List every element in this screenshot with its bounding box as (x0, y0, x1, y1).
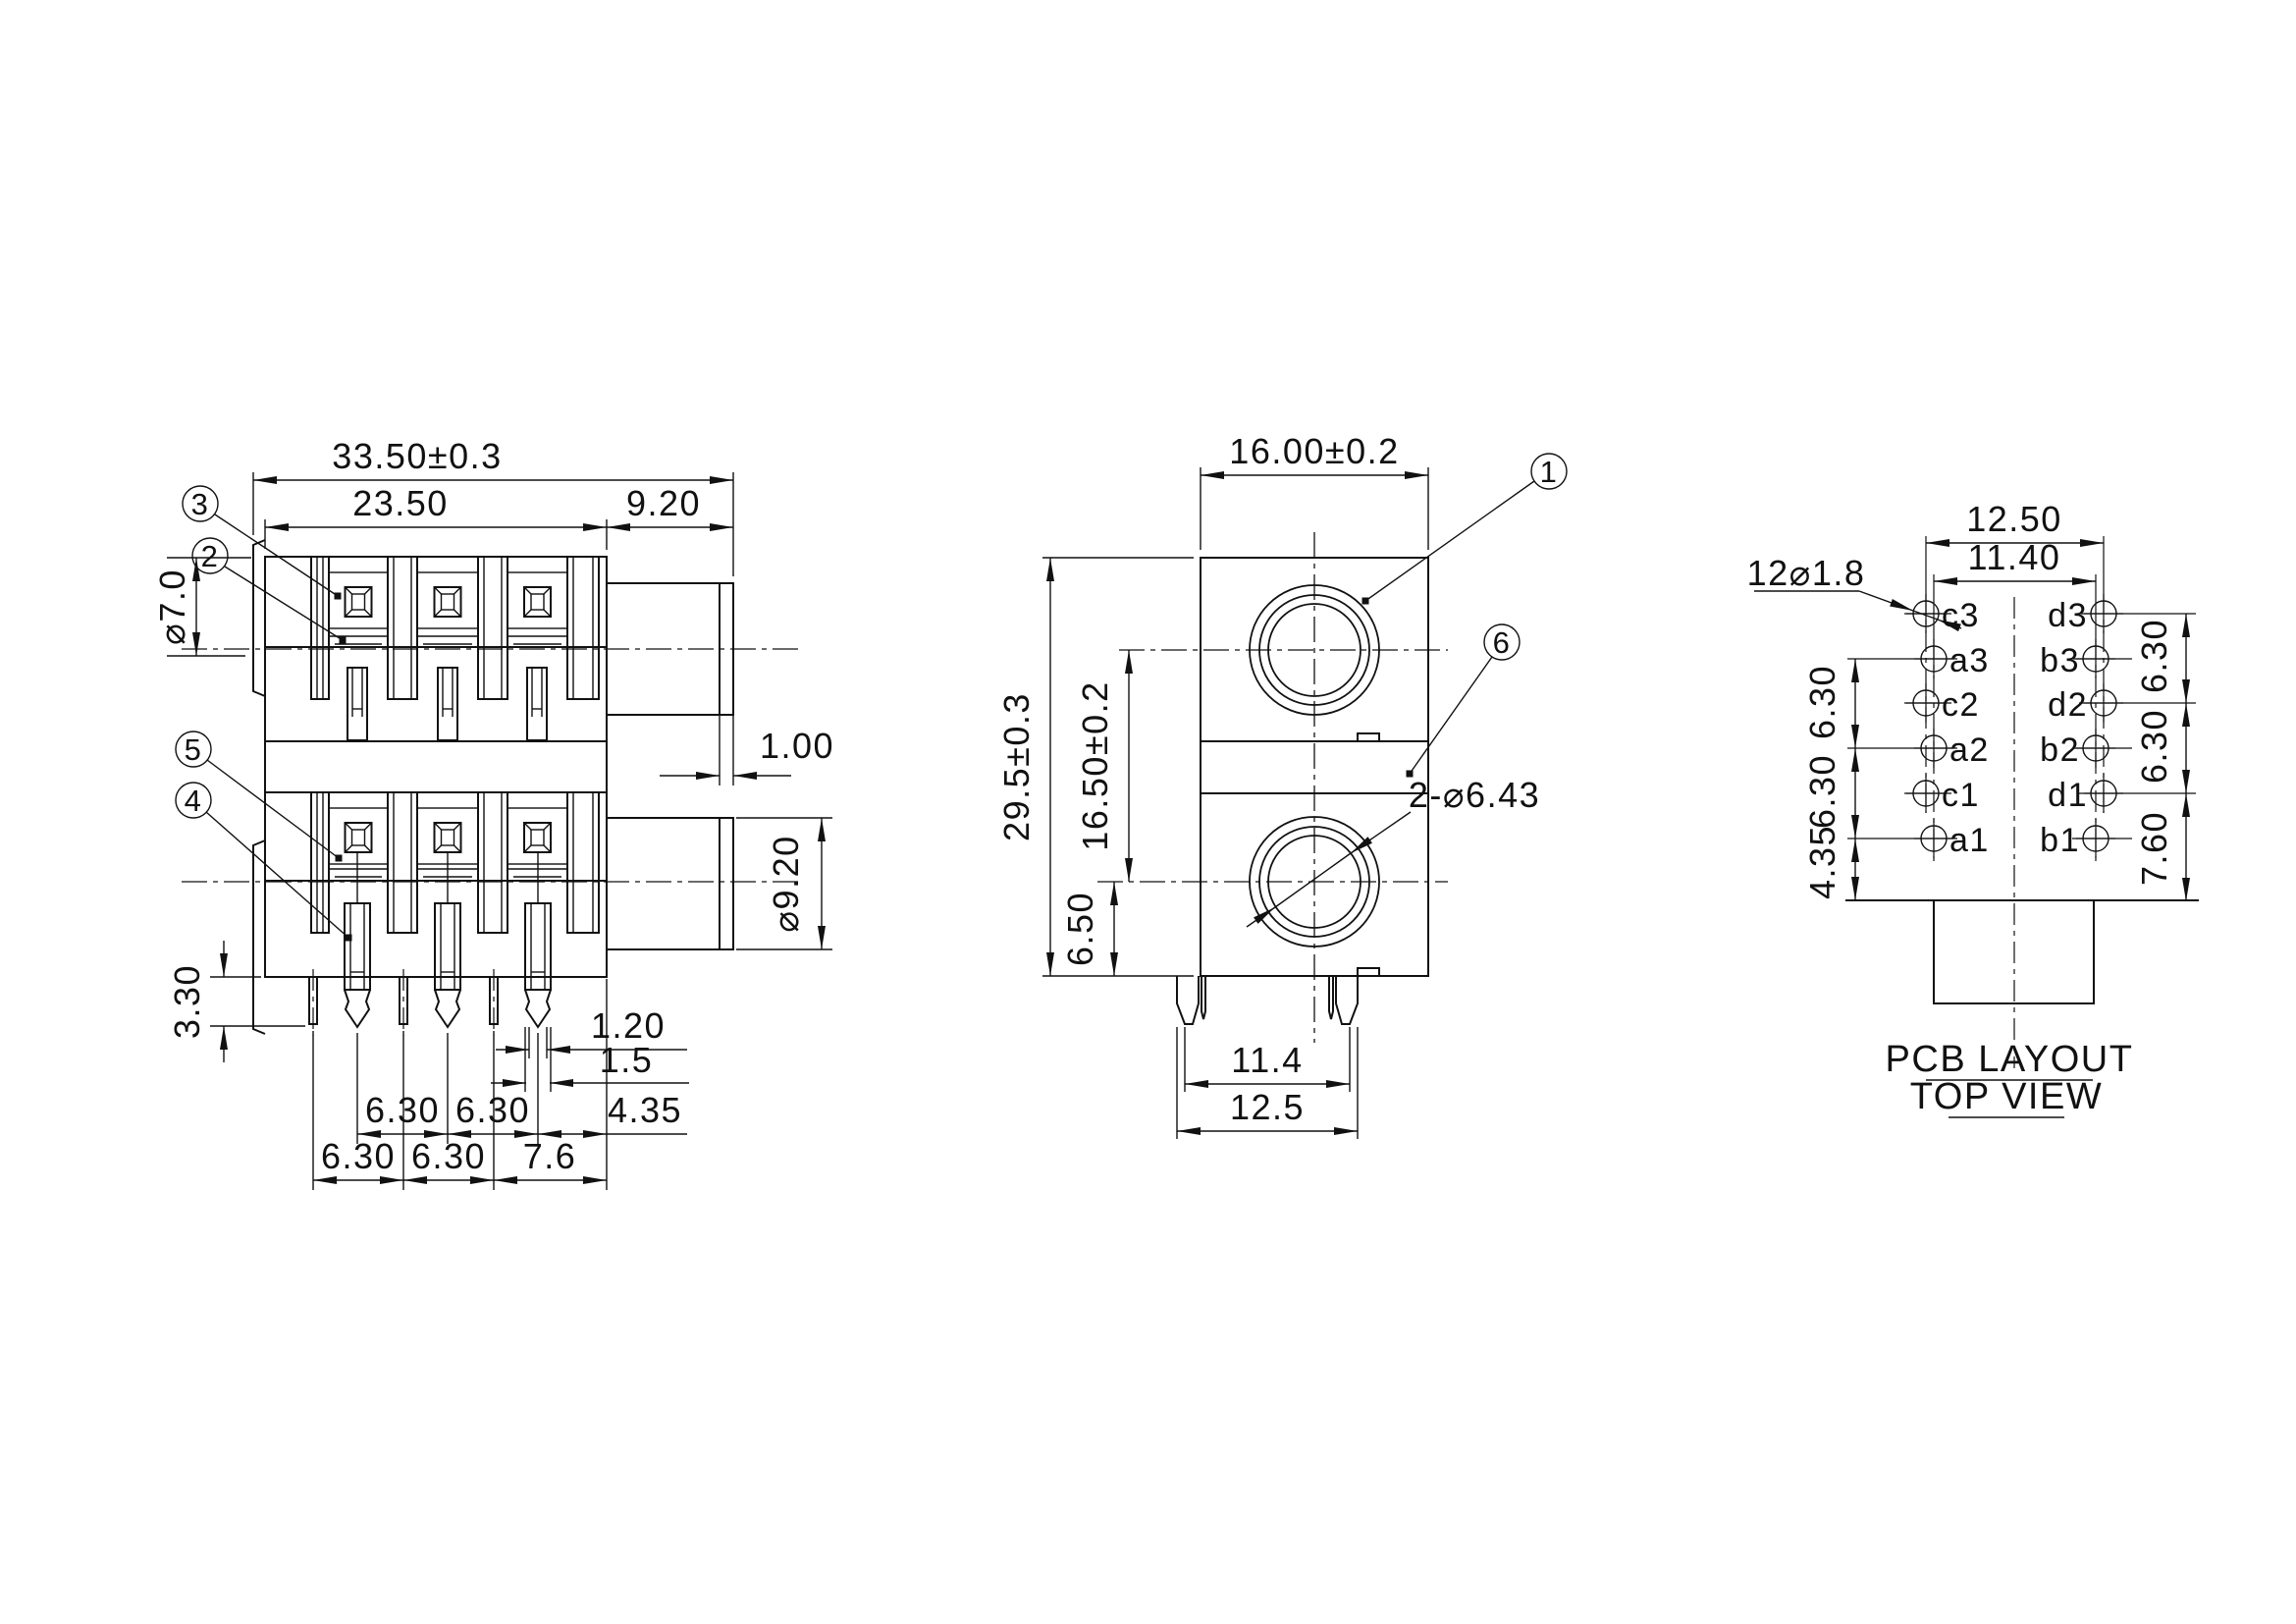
side-left-lip-top (253, 540, 265, 696)
lug-inner (352, 830, 365, 845)
solder-pin-tip (345, 990, 370, 1027)
dim-dia-9-20: ⌀9.20 (766, 835, 806, 932)
front-notch-top (1358, 733, 1379, 741)
callout-leader (225, 567, 343, 640)
separator-post (567, 557, 599, 699)
dim-12-5: 12.5 (1230, 1087, 1305, 1127)
pcb-pad-label-c2: c2 (1942, 686, 1980, 724)
dim-4-35: 4.35 (608, 1090, 682, 1130)
side-left-lip-bottom (253, 840, 265, 1034)
dim-6-30-bot1: 6.30 (321, 1136, 396, 1176)
dim-12-50: 12.50 (1966, 499, 2062, 539)
dim-9-20: 9.20 (626, 483, 701, 523)
callout-4: 4 (185, 784, 203, 818)
pcb-pad-label-d3: d3 (2048, 597, 2088, 634)
dim-23-50: 23.50 (352, 483, 449, 523)
dim-6-50: 6.50 (1060, 892, 1100, 966)
callout-leader (206, 812, 348, 938)
side-internal-detail (309, 557, 599, 1036)
pcb-title-line2: TOP VIEW (1910, 1076, 2103, 1117)
side-dimension-lines (196, 480, 822, 1180)
leader-dot (335, 593, 342, 600)
dim-3-30: 3.30 (167, 964, 207, 1039)
middle-contact-tab (438, 668, 457, 740)
front-view (1097, 532, 1448, 1043)
pcb-pad-label-b2: b2 (2040, 731, 2080, 769)
callout-1: 1 (1540, 455, 1559, 489)
side-bottom-bushing (607, 818, 733, 949)
callout-leader (1410, 657, 1492, 774)
contact-cavity (329, 572, 388, 628)
lug-inner (531, 594, 544, 610)
dim-11-4: 11.4 (1231, 1040, 1303, 1080)
middle-contact-tab (347, 668, 367, 740)
dim-33-50: 33.50±0.3 (332, 436, 502, 476)
dimension-texts: 33.50±0.323.509.20⌀7.01.00⌀9.203.301.201… (152, 431, 2174, 1176)
dim-6-30-pcb-r1: 6.30 (2134, 619, 2174, 693)
note-12-dia-1-8: 12⌀1.8 (1747, 553, 1866, 593)
middle-contact-tab (527, 668, 547, 740)
callout-6: 6 (1493, 625, 1512, 660)
drawing-canvas: c3d3a3b3c2d2a2b2c1d1a1b1 33.50±0.323.509… (0, 0, 2296, 1624)
dim-1-5: 1.5 (600, 1040, 654, 1080)
separator-post (388, 557, 417, 699)
callout-leader (1365, 481, 1534, 601)
lug-inner (531, 830, 544, 845)
front-leg-left (1177, 976, 1199, 1024)
note-2-dia-6-43: 2-⌀6.43 (1409, 775, 1540, 815)
pcb-pad-label-a3: a3 (1949, 642, 1990, 679)
dim-7-6: 7.6 (523, 1136, 577, 1176)
callout-leader (207, 760, 339, 858)
dim-29-5: 29.5±0.3 (996, 692, 1037, 841)
dim-11-40: 11.40 (1968, 537, 2061, 577)
dim-7-60-pcb: 7.60 (2134, 811, 2174, 886)
callout-2: 2 (201, 539, 220, 573)
solder-pin-tip (525, 990, 551, 1027)
pcb-title-line1: PCB LAYOUT (1886, 1039, 2134, 1080)
dim-6-30-top1: 6.30 (365, 1090, 440, 1130)
dim-16-50: 16.50±0.2 (1075, 680, 1115, 850)
callout-3: 3 (191, 487, 210, 521)
pcb-pad-label-d1: d1 (2048, 777, 2088, 814)
contact-cavity (507, 572, 567, 628)
separator-post (567, 792, 599, 933)
lug-inner (442, 830, 454, 845)
pcb-pad-label-a2: a2 (1949, 731, 1990, 769)
pcb-pad-label-c3: c3 (1942, 597, 1980, 634)
dim-6-30-top2: 6.30 (455, 1090, 530, 1130)
leader-dot (336, 855, 343, 862)
dim-4-35-pcb: 4.35 (1802, 825, 1842, 899)
dim-6-30-pcb-l2: 6.30 (1802, 754, 1842, 829)
pcb-pad-label-b1: b1 (2040, 822, 2080, 859)
side-view (182, 540, 800, 1036)
leader-dot (1362, 598, 1369, 605)
dim-dia-7-0: ⌀7.0 (152, 568, 192, 645)
pcb-pad-label-b3: b3 (2040, 642, 2080, 679)
separator-post (478, 792, 507, 933)
front-notch-bottom (1358, 968, 1379, 976)
solder-pin-tip (435, 990, 460, 1027)
contact-cavity (417, 572, 478, 628)
callout-5: 5 (185, 732, 203, 767)
dim-6-30-bot2: 6.30 (411, 1136, 486, 1176)
leader-dot (340, 637, 347, 644)
separator-post (478, 557, 507, 699)
front-leg-right (1336, 976, 1358, 1024)
lug-inner (442, 594, 454, 610)
dim-6-30-pcb-l1: 6.30 (1802, 665, 1842, 739)
dim-16-00: 16.00±0.2 (1229, 431, 1399, 471)
separator-post (388, 792, 417, 933)
pcb-pad-label-a1: a1 (1949, 822, 1990, 859)
pcb-pad-label-d2: d2 (2048, 686, 2088, 724)
leader-dot (346, 935, 352, 942)
separator-post (311, 557, 329, 699)
lug-inner (352, 594, 365, 610)
dim-1-00: 1.00 (760, 726, 834, 766)
technical-drawing: c3d3a3b3c2d2a2b2c1d1a1b1 33.50±0.323.509… (0, 0, 2296, 1624)
dim-6-30-pcb-r2: 6.30 (2134, 709, 2174, 784)
pcb-pad-label-c1: c1 (1942, 777, 1980, 814)
